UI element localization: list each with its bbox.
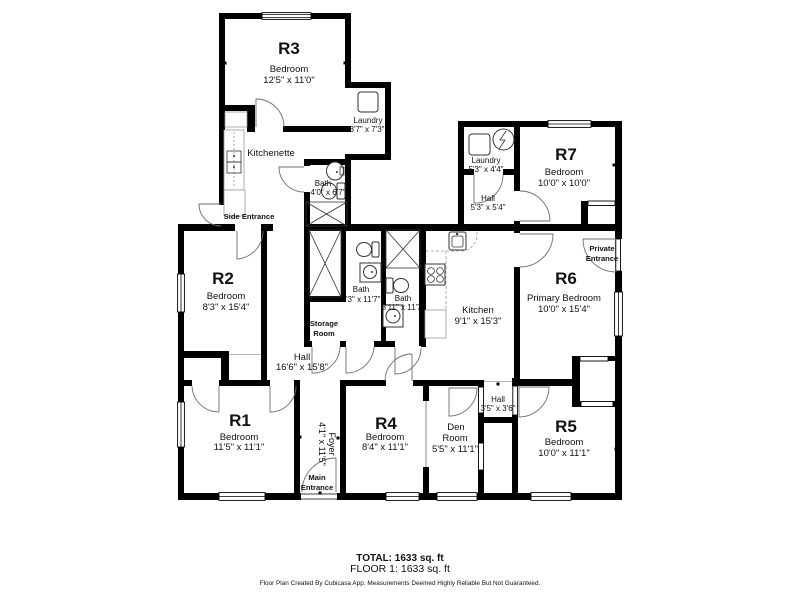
svg-text:Side Entrance: Side Entrance — [224, 212, 275, 221]
svg-text:Room: Room — [313, 329, 335, 338]
svg-text:Bedroom: Bedroom — [545, 437, 584, 448]
svg-text:Main: Main — [308, 473, 326, 482]
svg-text:10'0" x 11'1": 10'0" x 11'1" — [538, 448, 589, 459]
svg-text:16'6" x 15'8": 16'6" x 15'8" — [276, 362, 328, 373]
svg-text:5'3" x 4'4": 5'3" x 4'4" — [469, 165, 504, 174]
svg-text:R5: R5 — [555, 417, 577, 436]
svg-text:Bedroom: Bedroom — [545, 167, 584, 178]
svg-text:Private: Private — [589, 244, 614, 253]
svg-text:R7: R7 — [555, 145, 577, 164]
svg-text:Room: Room — [442, 433, 467, 444]
svg-text:Entrance: Entrance — [301, 483, 334, 492]
svg-text:7'3" x 11'7": 7'3" x 11'7" — [342, 295, 381, 304]
svg-text:R6: R6 — [555, 269, 577, 288]
svg-text:4'0" x 6'7": 4'0" x 6'7" — [311, 188, 346, 197]
svg-text:Laundry: Laundry — [354, 116, 383, 125]
svg-text:Storage: Storage — [310, 319, 338, 328]
svg-text:Hall: Hall — [491, 395, 505, 404]
svg-text:R3: R3 — [278, 39, 300, 58]
svg-text:3'11" x 11'7": 3'11" x 11'7" — [382, 303, 425, 312]
svg-text:Den: Den — [447, 422, 464, 433]
svg-text:9'1" x 15'3": 9'1" x 15'3" — [455, 316, 502, 327]
svg-text:3'5" x 3'6": 3'5" x 3'6" — [481, 404, 516, 413]
svg-text:5'3" x 5'4": 5'3" x 5'4" — [471, 203, 506, 212]
svg-text:5'5" x 11'1": 5'5" x 11'1" — [432, 444, 478, 455]
svg-text:Floor Plan Created By Cubicasa: Floor Plan Created By Cubicasa App. Meas… — [260, 580, 541, 587]
svg-text:Bath: Bath — [315, 179, 331, 188]
svg-text:Laundry: Laundry — [472, 156, 501, 165]
svg-text:11'5" x 11'1": 11'5" x 11'1" — [214, 442, 265, 453]
svg-text:Kitchen: Kitchen — [462, 305, 494, 316]
svg-text:Foyer: Foyer — [327, 432, 337, 455]
svg-text:Bath: Bath — [395, 294, 411, 303]
svg-text:FLOOR 1: 1633 sq. ft: FLOOR 1: 1633 sq. ft — [350, 563, 450, 575]
svg-text:R4: R4 — [375, 414, 397, 433]
svg-text:Kitchenette: Kitchenette — [247, 148, 295, 159]
svg-text:R2: R2 — [212, 269, 234, 288]
svg-text:Entrance: Entrance — [586, 254, 619, 263]
svg-text:10'0" x 15'4": 10'0" x 15'4" — [538, 304, 590, 315]
svg-text:Hall: Hall — [481, 194, 495, 203]
svg-text:8'4" x 11'1": 8'4" x 11'1" — [362, 442, 408, 453]
svg-text:4'1" x 11'5": 4'1" x 11'5" — [317, 422, 327, 466]
svg-text:Primary Bedroom: Primary Bedroom — [527, 293, 601, 304]
svg-text:Bedroom: Bedroom — [207, 291, 246, 302]
svg-text:8'3" x 15'4": 8'3" x 15'4" — [203, 302, 250, 313]
svg-text:12'5" x 11'0": 12'5" x 11'0" — [263, 75, 314, 86]
svg-text:10'0" x 10'0": 10'0" x 10'0" — [538, 178, 590, 189]
svg-text:R1: R1 — [229, 411, 251, 430]
svg-text:3'7" x 7'3": 3'7" x 7'3" — [350, 125, 385, 134]
svg-text:Bedroom: Bedroom — [270, 64, 309, 75]
svg-text:Bath: Bath — [353, 285, 369, 294]
